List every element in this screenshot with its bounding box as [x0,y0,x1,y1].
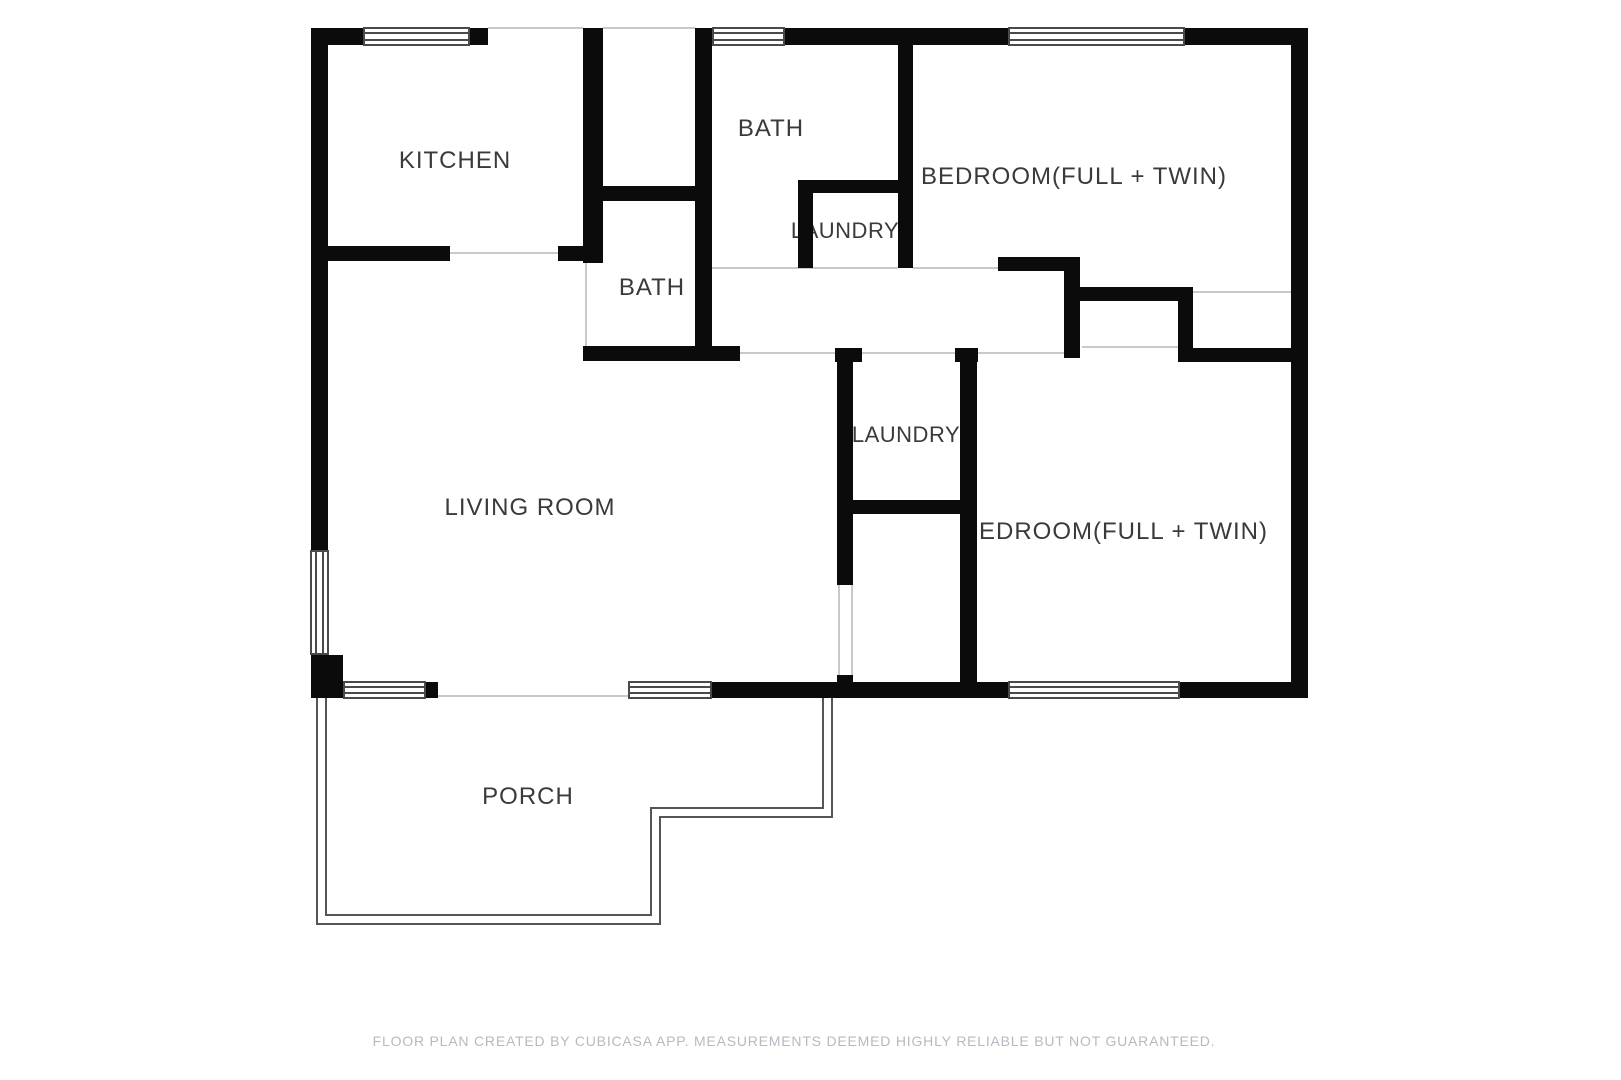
wall-segment [311,655,343,698]
window [343,681,426,699]
wall-segment [837,675,853,698]
wall-segment [583,346,740,361]
wall-segment [426,682,438,698]
door-opening [438,695,628,697]
wall-segment [311,28,363,45]
wall-segment [1180,682,1308,698]
room-label-living-room: LIVING ROOM [444,494,615,522]
window-glass [344,686,425,694]
wall-segment [1185,28,1308,45]
room-label-laundry-mid: LAUNDRY [852,422,960,448]
window-glass [1009,32,1184,41]
footer-note: FLOOR PLAN CREATED BY CUBICASA APP. MEAS… [373,1033,1216,1049]
door-opening [585,263,587,346]
window [310,550,329,655]
room-label-bedroom-right: BEDROOM(FULL + TWIN) [962,518,1268,546]
wall-segment [898,28,913,268]
room-label-bedroom-top: BEDROOM(FULL + TWIN) [921,163,1227,191]
wall-segment [798,180,913,193]
door-opening [488,27,583,29]
window [1008,27,1185,46]
window-glass [315,551,324,654]
wall-segment [470,28,488,45]
wall-segment [798,180,813,268]
floor-plan: KITCHEN BATH BEDROOM(FULL + TWIN) LAUNDR… [0,0,1621,1080]
door-opening [851,585,853,675]
room-label-porch: PORCH [482,783,574,811]
window [363,27,470,46]
wall-segment [311,246,450,261]
wall-segment [837,348,853,585]
door-opening [603,27,695,29]
wall-segment [960,348,977,698]
window [628,681,712,699]
window-glass [1009,686,1179,694]
wall-segment [583,186,712,201]
door-opening [1082,346,1178,348]
window-glass [364,32,469,41]
wall-segment [695,28,712,361]
wall-segment [1178,348,1308,362]
door-opening [1193,291,1291,293]
wall-segment [785,28,1008,45]
room-label-bath-mid: BATH [619,274,685,302]
room-label-bath-top: BATH [738,115,804,143]
window-glass [713,32,784,41]
wall-segment [311,28,328,550]
porch-outline [0,0,1621,1080]
wall-segment [837,500,977,514]
window [712,27,785,46]
door-opening [913,267,998,269]
wall-segment [1078,287,1193,301]
room-label-kitchen: KITCHEN [399,147,511,175]
wall-segment [1064,257,1080,358]
window [1008,681,1180,699]
door-opening [450,252,558,254]
door-opening [712,352,1064,354]
door-opening [838,585,840,675]
wall-segment [1291,28,1308,698]
wall-segment [558,246,603,261]
window-glass [629,686,711,694]
wall-segment [583,28,603,263]
